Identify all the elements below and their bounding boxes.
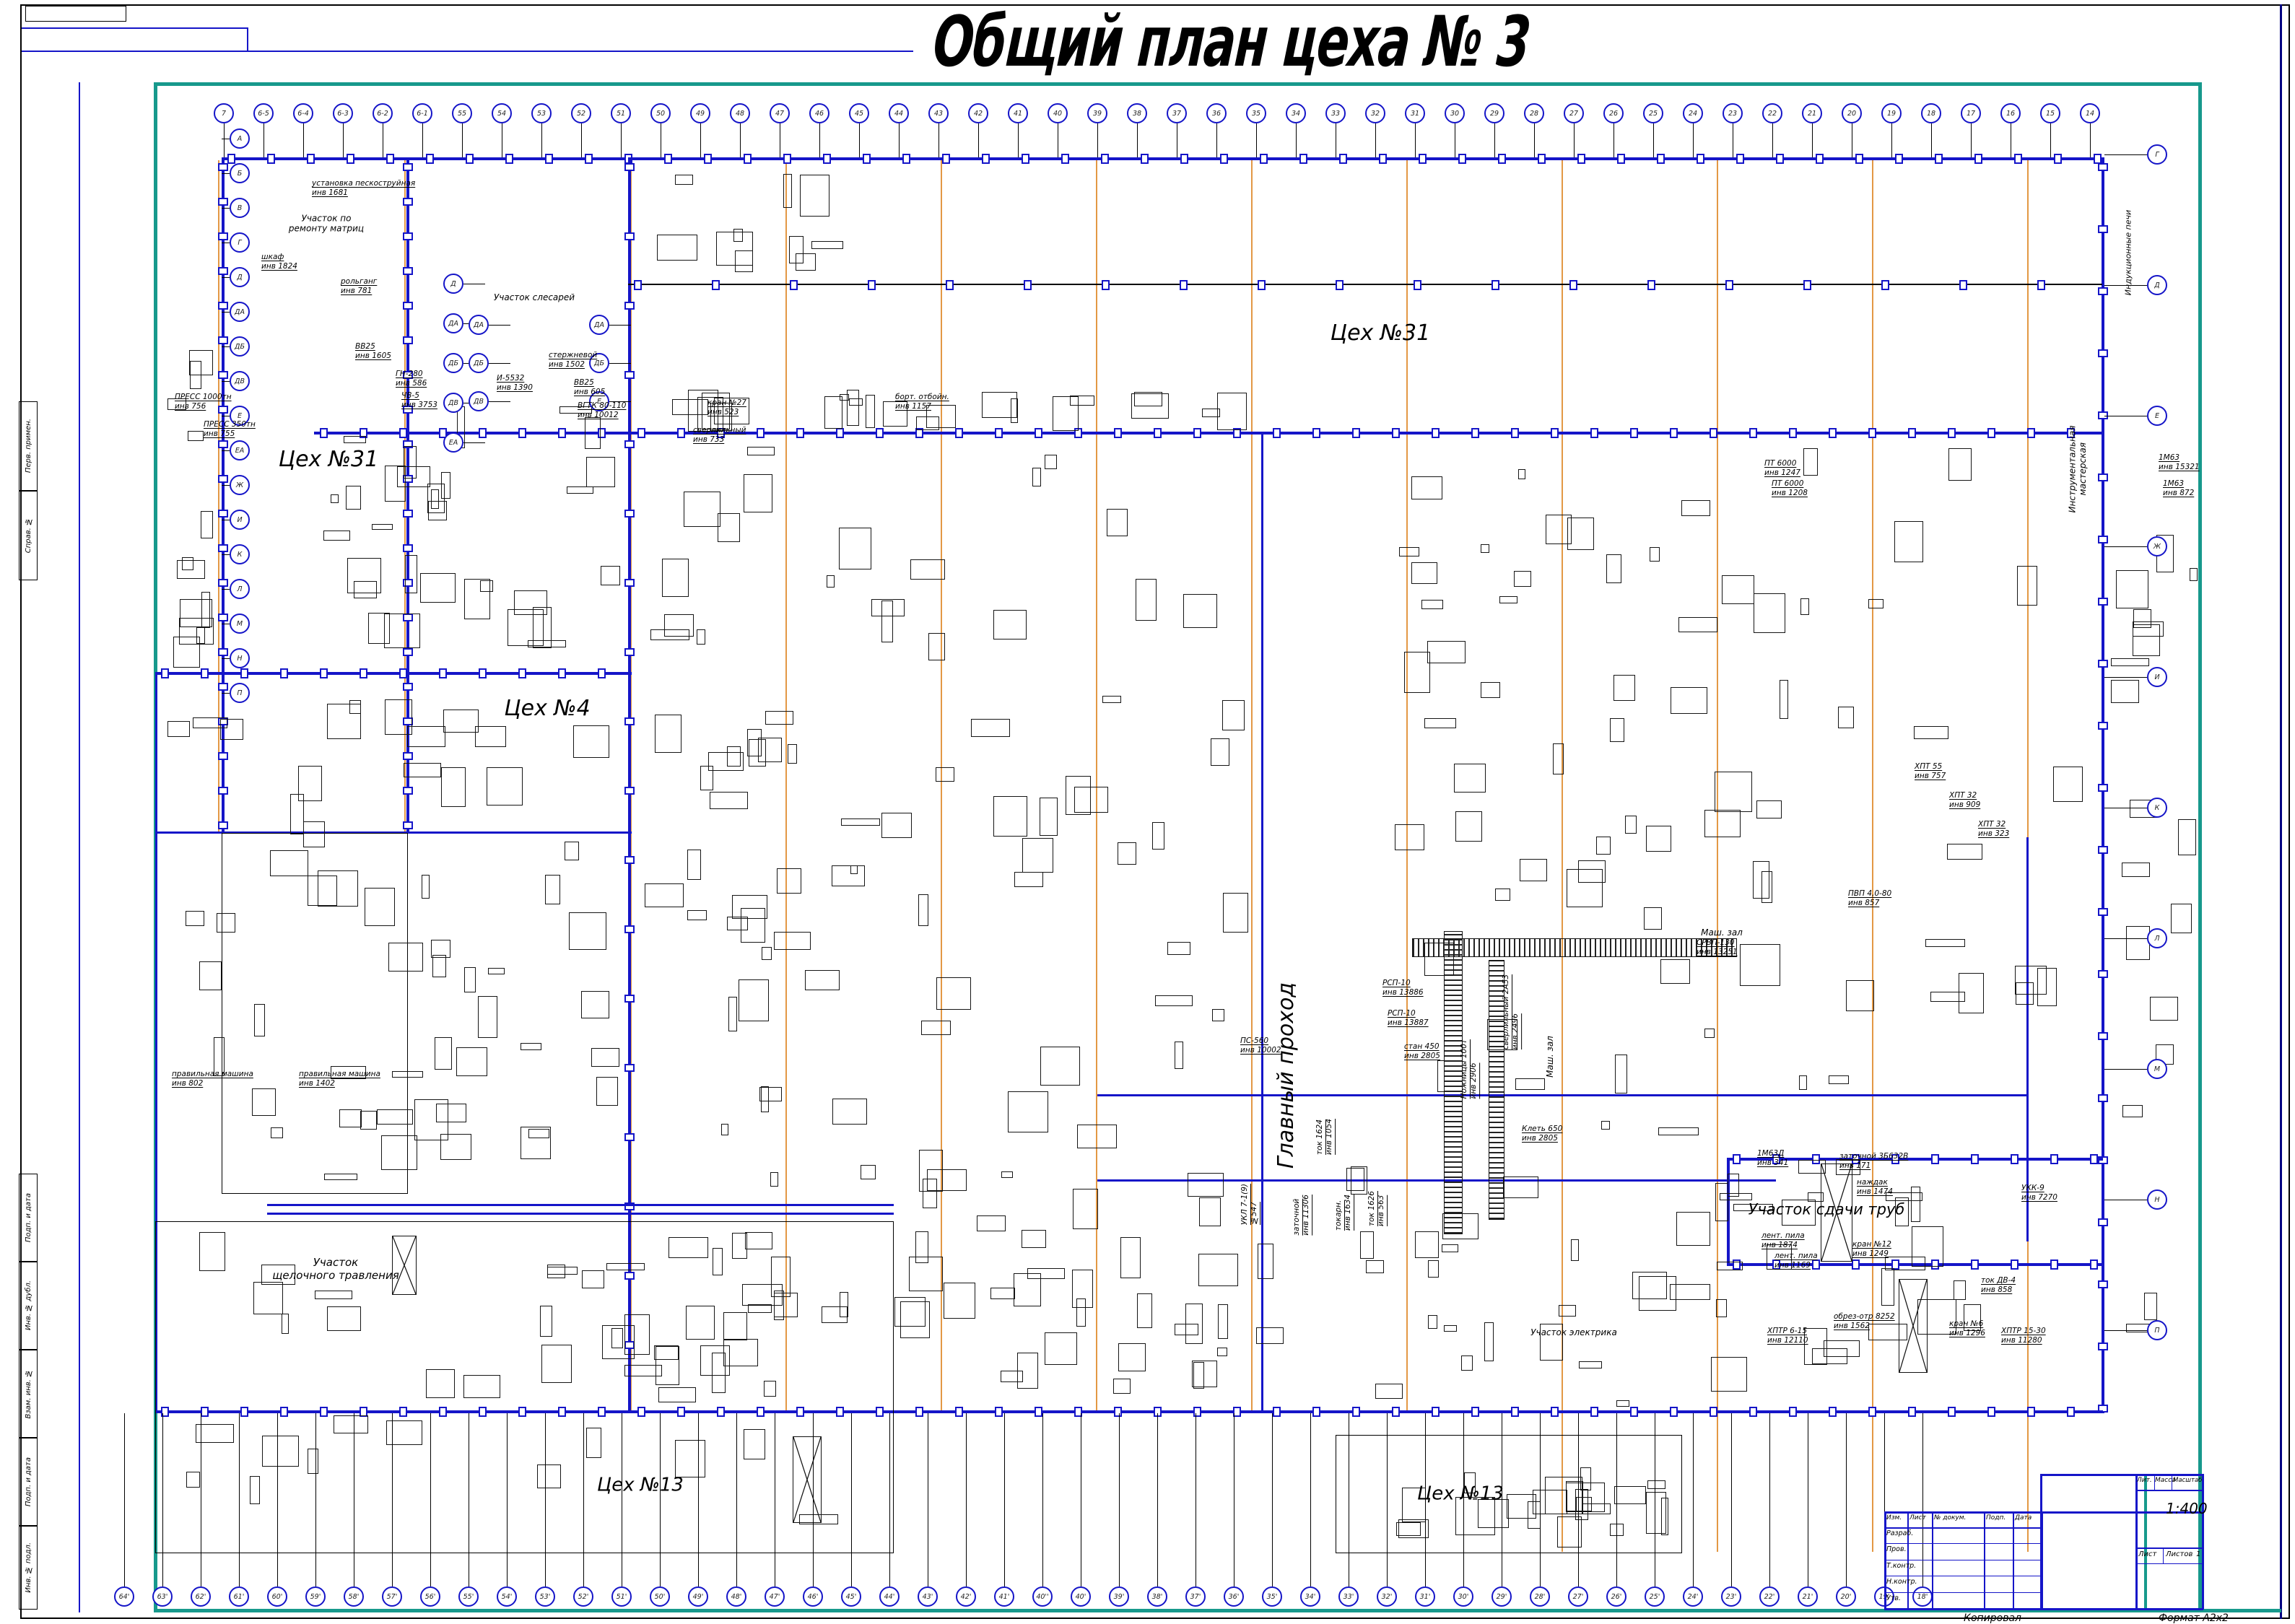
machine-block bbox=[1258, 1244, 1273, 1279]
axis-bubble: 55 bbox=[452, 103, 472, 123]
axis-bubble: 37 bbox=[1167, 103, 1187, 123]
machine-label: СРВП-130 инв 13251 bbox=[1697, 938, 1738, 957]
axis-bubble: 47' bbox=[765, 1586, 785, 1607]
axis-leader bbox=[813, 1413, 814, 1586]
axis-leader bbox=[222, 208, 230, 209]
axis-leader bbox=[383, 123, 383, 157]
machine-block bbox=[1647, 1480, 1665, 1490]
column-marker bbox=[1803, 280, 1811, 290]
axis-bubble: П bbox=[230, 683, 250, 703]
machine-label: Клеть 650 инв 2805 bbox=[1522, 1125, 1562, 1143]
machine-block bbox=[347, 558, 381, 593]
machine-block bbox=[2190, 568, 2198, 581]
axis-leader bbox=[545, 1413, 546, 1586]
machine-block bbox=[1754, 593, 1785, 633]
machine-block bbox=[832, 1099, 867, 1125]
axis-bubble: 53 bbox=[531, 103, 552, 123]
machine-label: шкаф инв 1824 bbox=[261, 253, 297, 271]
column-marker bbox=[1379, 154, 1387, 164]
column-marker bbox=[1352, 1407, 1360, 1417]
machine-block bbox=[1722, 575, 1754, 604]
column-marker bbox=[1959, 280, 1967, 290]
stamp-col-header: № докум. bbox=[1934, 1514, 1966, 1522]
axis-leader bbox=[851, 1413, 852, 1586]
column-marker bbox=[2098, 349, 2108, 357]
axis-bubble: К bbox=[2147, 798, 2167, 818]
margin-box-label: Перв. примен. bbox=[25, 419, 32, 473]
axis-leader bbox=[507, 1413, 508, 1586]
machine-block bbox=[541, 1345, 571, 1384]
axis-bubble: 25 bbox=[1643, 103, 1663, 123]
column-marker bbox=[744, 154, 752, 164]
machine-block bbox=[381, 1135, 417, 1170]
machine-block bbox=[744, 474, 772, 512]
machine-label: ХПТ 32 инв 323 bbox=[1978, 820, 2009, 839]
stamp-row-label: Утв. bbox=[1886, 1594, 1901, 1602]
column-marker bbox=[1776, 154, 1784, 164]
column-marker bbox=[995, 428, 1003, 438]
axis-leader bbox=[661, 123, 661, 157]
column-marker bbox=[1868, 428, 1876, 438]
machine-block bbox=[993, 796, 1027, 837]
axis-leader bbox=[2090, 123, 2091, 157]
axis-leader bbox=[463, 442, 485, 443]
axis-bubble: 22 bbox=[1762, 103, 1782, 123]
column-marker bbox=[1273, 1407, 1281, 1417]
column-marker bbox=[1868, 1407, 1876, 1417]
machine-block bbox=[928, 633, 945, 660]
machine-block bbox=[1399, 547, 1419, 556]
column-marker bbox=[624, 579, 635, 587]
column-marker bbox=[1432, 428, 1440, 438]
machine-block bbox=[346, 486, 360, 510]
column-marker bbox=[218, 683, 228, 691]
margin-box: Подп. и дата bbox=[19, 1174, 38, 1262]
machine-block bbox=[824, 396, 842, 429]
machine-block bbox=[167, 721, 190, 738]
column-marker bbox=[995, 1407, 1003, 1417]
machine-block bbox=[1155, 995, 1193, 1006]
column-marker bbox=[1061, 154, 1069, 164]
margin-box-label: Взам. инв. № bbox=[25, 1369, 32, 1419]
axis-leader bbox=[1574, 123, 1575, 157]
machine-block bbox=[1616, 1400, 1630, 1407]
machine-block bbox=[190, 361, 201, 389]
axis-bubble: 44 bbox=[889, 103, 909, 123]
machine-block bbox=[1183, 594, 1217, 628]
column-marker bbox=[218, 198, 228, 206]
axis-centerline bbox=[1872, 160, 1873, 1552]
machine-block bbox=[1404, 652, 1430, 692]
axis-bubble: 40'' bbox=[1032, 1586, 1053, 1607]
machine-block bbox=[601, 566, 619, 585]
column-marker bbox=[1102, 280, 1110, 290]
machine-block bbox=[464, 967, 476, 992]
column-marker bbox=[403, 232, 413, 240]
axis-bubble: 61' bbox=[229, 1586, 249, 1607]
machine-block bbox=[1740, 944, 1780, 986]
machine-block bbox=[1113, 1379, 1131, 1394]
axis-leader bbox=[277, 1413, 278, 1586]
machine-block bbox=[1045, 455, 1057, 469]
machine-block bbox=[591, 1048, 620, 1067]
machine-label: ток 1626 инв 563 bbox=[1367, 1191, 1386, 1226]
axis-leader bbox=[1058, 123, 1058, 157]
column-marker bbox=[1035, 1407, 1042, 1417]
machine-block bbox=[1073, 1189, 1098, 1230]
machine-block bbox=[254, 1004, 265, 1036]
column-marker bbox=[712, 280, 720, 290]
machine-block bbox=[657, 235, 697, 261]
top-strip-jog-v bbox=[247, 27, 248, 52]
machine-block bbox=[1375, 1384, 1403, 1399]
machine-block bbox=[344, 436, 366, 443]
axis-bubble: 55' bbox=[458, 1586, 479, 1607]
machine-block bbox=[488, 968, 505, 974]
column-marker bbox=[1273, 428, 1281, 438]
column-marker bbox=[360, 668, 367, 678]
machine-block bbox=[1514, 571, 1531, 587]
machine-block bbox=[1495, 889, 1510, 901]
machine-block bbox=[687, 850, 700, 880]
machine-block bbox=[765, 711, 793, 725]
machine-block bbox=[1455, 811, 1482, 842]
column-marker bbox=[1180, 280, 1188, 290]
footer-format-label: Формат А2х2 bbox=[2159, 1612, 2229, 1624]
margin-box-label: Справ. № bbox=[25, 518, 32, 553]
machine-block bbox=[186, 911, 204, 926]
column-marker bbox=[403, 752, 413, 760]
machine-block bbox=[1661, 1498, 1668, 1535]
axis-bubble: Е bbox=[2147, 406, 2167, 426]
axis-leader bbox=[609, 325, 631, 326]
machine-block bbox=[422, 875, 430, 899]
machine-block bbox=[800, 175, 829, 216]
column-marker bbox=[218, 614, 228, 621]
machine-label: ХПТР 15-30 инв 11280 bbox=[2001, 1327, 2046, 1345]
axis-leader bbox=[700, 123, 701, 157]
column-marker bbox=[386, 154, 394, 164]
stamp-lit-header: Лит. bbox=[2137, 1477, 2152, 1484]
axis-leader bbox=[1157, 1413, 1158, 1586]
machine-block bbox=[567, 486, 593, 494]
column-marker bbox=[1931, 1154, 1939, 1164]
stamp-sheets-value: 1 bbox=[2196, 1550, 2200, 1558]
machine-label: кран №6 инв 1296 bbox=[1949, 1319, 1985, 1338]
machine-block bbox=[1040, 798, 1057, 835]
axis-centerline bbox=[1406, 160, 1408, 1410]
axis-leader bbox=[698, 1413, 699, 1586]
column-marker bbox=[2027, 428, 2035, 438]
building-wall bbox=[1097, 1094, 2026, 1096]
machine-block bbox=[1658, 1127, 1699, 1135]
column-marker bbox=[624, 925, 635, 933]
machine-block bbox=[1014, 1273, 1041, 1306]
machine-block bbox=[2133, 624, 2160, 656]
zone-label: Маш. зал bbox=[1545, 1036, 1555, 1078]
machine-block bbox=[331, 494, 339, 503]
axis-bubble: А bbox=[230, 128, 250, 149]
machine-block bbox=[334, 1415, 369, 1433]
machine-block bbox=[723, 1312, 747, 1340]
machine-block bbox=[764, 1381, 776, 1397]
column-marker bbox=[664, 154, 672, 164]
column-marker bbox=[982, 154, 990, 164]
column-marker bbox=[1829, 1407, 1837, 1417]
machine-label: ПТ 6000 инв 1208 bbox=[1772, 479, 1808, 498]
column-marker bbox=[2090, 1260, 2098, 1270]
machine-label: ПТ 6000 инв 1247 bbox=[1764, 459, 1800, 478]
column-marker bbox=[704, 154, 712, 164]
machine-block bbox=[1256, 1327, 1284, 1344]
stamp-row-label: Т.контр. bbox=[1886, 1562, 1916, 1570]
machine-block bbox=[388, 943, 422, 972]
top-strip-line bbox=[22, 51, 913, 52]
machine-block bbox=[944, 1283, 975, 1319]
column-marker bbox=[1114, 1407, 1122, 1417]
machine-block bbox=[1211, 738, 1229, 766]
machine-block bbox=[936, 977, 971, 1010]
machine-block bbox=[839, 528, 871, 569]
column-marker bbox=[1498, 154, 1506, 164]
machine-block bbox=[1120, 1237, 1141, 1278]
machine-block bbox=[1396, 1522, 1420, 1536]
column-marker bbox=[2011, 1154, 2019, 1164]
machine-block bbox=[1711, 1357, 1747, 1392]
machine-block bbox=[545, 875, 560, 904]
machine-block bbox=[742, 1284, 783, 1306]
axis-bubble: ДВ bbox=[230, 371, 250, 391]
axis-leader bbox=[354, 1413, 354, 1586]
axis-bubble: М bbox=[2147, 1059, 2167, 1079]
axis-bubble: 41' bbox=[994, 1586, 1014, 1607]
machine-block bbox=[2150, 997, 2178, 1021]
column-marker bbox=[1816, 154, 1824, 164]
axis-bubble: 59' bbox=[305, 1586, 326, 1607]
axis-leader bbox=[222, 624, 230, 624]
teal-frame-right bbox=[2198, 82, 2202, 1612]
stamp-line bbox=[2042, 1511, 2043, 1610]
column-marker bbox=[1352, 428, 1360, 438]
machine-block bbox=[217, 913, 235, 933]
column-marker bbox=[1670, 1407, 1678, 1417]
column-marker bbox=[1551, 428, 1559, 438]
machine-block bbox=[478, 996, 497, 1038]
machine-block bbox=[611, 1328, 623, 1348]
machine-block bbox=[847, 390, 859, 426]
machine-block bbox=[1614, 675, 1635, 701]
machine-block bbox=[1017, 1353, 1037, 1389]
machine-block bbox=[1001, 1171, 1013, 1178]
column-marker bbox=[2098, 473, 2108, 481]
axis-leader bbox=[430, 1413, 431, 1586]
column-marker bbox=[426, 154, 434, 164]
column-marker bbox=[403, 683, 413, 691]
machine-block bbox=[1415, 1231, 1438, 1257]
machine-block bbox=[1481, 682, 1499, 698]
axis-bubble: 60' bbox=[267, 1586, 287, 1607]
axis-leader bbox=[2104, 1069, 2147, 1070]
machine-label: ток 1624 инв 1054 bbox=[1315, 1119, 1334, 1155]
machine-block bbox=[1444, 1325, 1456, 1332]
machine-block bbox=[253, 1282, 283, 1314]
machine-block bbox=[1032, 468, 1042, 487]
machine-block bbox=[372, 524, 393, 530]
axis-leader bbox=[469, 1413, 469, 1586]
axis-leader bbox=[222, 243, 230, 243]
axis-leader bbox=[978, 123, 979, 157]
axis-bubble: ДБ bbox=[230, 336, 250, 357]
column-marker bbox=[624, 510, 635, 518]
column-marker bbox=[2098, 225, 2108, 233]
axis-bubble: 33' bbox=[1338, 1586, 1359, 1607]
axis-leader bbox=[222, 693, 230, 694]
axis-bubble: 49' bbox=[688, 1586, 708, 1607]
machine-block bbox=[811, 241, 843, 249]
column-marker bbox=[1710, 1407, 1717, 1417]
machine-block bbox=[1136, 579, 1157, 621]
column-marker bbox=[1511, 1407, 1519, 1417]
column-marker bbox=[1432, 1407, 1440, 1417]
machine-block bbox=[1571, 1239, 1579, 1261]
stamp-line bbox=[2135, 1474, 2138, 1610]
axis-leader bbox=[239, 1413, 240, 1586]
machine-block bbox=[1040, 1047, 1079, 1086]
machine-block bbox=[841, 818, 881, 825]
machine-block bbox=[1118, 1343, 1146, 1372]
column-marker bbox=[2098, 536, 2108, 543]
axis-leader bbox=[315, 1413, 316, 1586]
axis-leader bbox=[422, 123, 423, 157]
column-marker bbox=[876, 428, 884, 438]
machine-block bbox=[936, 767, 954, 782]
zone-label: Маш. зал bbox=[1701, 927, 1743, 938]
axis-bubble: 42 bbox=[968, 103, 988, 123]
stamp-line bbox=[1884, 1592, 2042, 1593]
column-marker bbox=[1987, 1407, 1995, 1417]
column-marker bbox=[347, 154, 354, 164]
machine-block bbox=[2116, 570, 2148, 608]
column-marker bbox=[1908, 1407, 1916, 1417]
axis-bubble: 51' bbox=[611, 1586, 632, 1607]
building-wall bbox=[2026, 837, 2029, 1241]
machine-block bbox=[2171, 904, 2192, 933]
column-marker bbox=[1491, 280, 1499, 290]
machine-block bbox=[456, 1047, 487, 1076]
machine-block bbox=[1360, 1231, 1374, 1259]
axis-bubble: 19 bbox=[1881, 103, 1902, 123]
machine-block bbox=[1137, 1293, 1152, 1328]
column-marker bbox=[218, 440, 228, 448]
machine-label: правильная машина инв 802 bbox=[172, 1070, 253, 1088]
axis-leader bbox=[1653, 123, 1654, 157]
column-marker bbox=[479, 668, 487, 678]
axis-bubble: 52 bbox=[571, 103, 591, 123]
column-marker bbox=[1024, 280, 1032, 290]
axis-bubble: ЕА bbox=[443, 432, 463, 453]
column-marker bbox=[2098, 1218, 2108, 1226]
machine-block bbox=[654, 1345, 679, 1360]
axis-bubble: ДБ bbox=[469, 353, 489, 373]
column-marker bbox=[2098, 970, 2108, 978]
axis-bubble: 39' bbox=[1109, 1586, 1129, 1607]
axis-bubble: 41 bbox=[1008, 103, 1028, 123]
axis-leader bbox=[1272, 1413, 1273, 1586]
machine-block bbox=[1454, 764, 1486, 793]
machine-block bbox=[318, 870, 358, 907]
machine-block bbox=[377, 1109, 414, 1125]
machine-block bbox=[585, 417, 601, 448]
axis-centerline bbox=[1717, 160, 1718, 1552]
column-marker bbox=[403, 648, 413, 656]
axis-leader bbox=[2104, 938, 2147, 939]
machine-block bbox=[1202, 409, 1219, 418]
column-marker bbox=[1022, 154, 1029, 164]
axis-bubble: 34 bbox=[1286, 103, 1306, 123]
column-marker bbox=[2098, 1280, 2108, 1288]
column-marker bbox=[1569, 280, 1577, 290]
machine-block bbox=[464, 579, 490, 619]
stamp-col-header: Дата bbox=[2015, 1514, 2031, 1522]
axis-leader bbox=[1177, 123, 1177, 157]
axis-leader bbox=[1196, 1413, 1196, 1586]
axis-leader bbox=[224, 123, 225, 157]
machine-block bbox=[1704, 1029, 1715, 1039]
machine-label: ток ДВ-4 инв 858 bbox=[1981, 1276, 2016, 1295]
column-marker bbox=[1419, 154, 1427, 164]
column-marker bbox=[399, 428, 407, 438]
machine-block bbox=[540, 1306, 552, 1337]
axis-bubble: ДВ bbox=[469, 391, 489, 411]
axis-leader bbox=[1310, 1413, 1311, 1586]
machine-block bbox=[2111, 680, 2139, 703]
machine-label: ВВ25 инв 1605 bbox=[355, 342, 391, 361]
margin-box: Инв. № подл. bbox=[19, 1526, 38, 1610]
machine-block bbox=[650, 629, 689, 640]
column-marker bbox=[1299, 154, 1307, 164]
column-marker bbox=[218, 267, 228, 275]
column-marker bbox=[624, 302, 635, 310]
axis-leader bbox=[1614, 123, 1614, 157]
stamp-col-header: Подп. bbox=[1986, 1514, 2006, 1522]
column-marker bbox=[320, 428, 328, 438]
stamp-line bbox=[2013, 1511, 2014, 1610]
column-marker bbox=[218, 475, 228, 483]
machine-block bbox=[1798, 1160, 1826, 1173]
axis-bubble: ДВ bbox=[443, 393, 463, 413]
axis-bubble: Д bbox=[230, 267, 250, 287]
building-wall bbox=[267, 1204, 894, 1206]
column-marker bbox=[1971, 1260, 1979, 1270]
axis-bubble: 38' bbox=[1147, 1586, 1167, 1607]
column-marker bbox=[902, 154, 910, 164]
axis-leader bbox=[1655, 1413, 1655, 1586]
machine-block bbox=[463, 1375, 500, 1398]
axis-leader bbox=[2104, 1200, 2147, 1200]
machine-block bbox=[669, 1237, 708, 1258]
machine-block bbox=[569, 912, 606, 949]
machine-block bbox=[282, 1314, 289, 1334]
machine-block bbox=[1829, 1075, 1850, 1084]
column-marker bbox=[624, 163, 635, 171]
axis-bubble: 43' bbox=[918, 1586, 938, 1607]
machine-block bbox=[1578, 860, 1606, 883]
column-marker bbox=[218, 787, 228, 795]
machine-block bbox=[443, 710, 479, 733]
machine-block bbox=[1704, 810, 1741, 837]
axis-bubble: 58' bbox=[344, 1586, 364, 1607]
axis-leader bbox=[583, 1413, 584, 1586]
